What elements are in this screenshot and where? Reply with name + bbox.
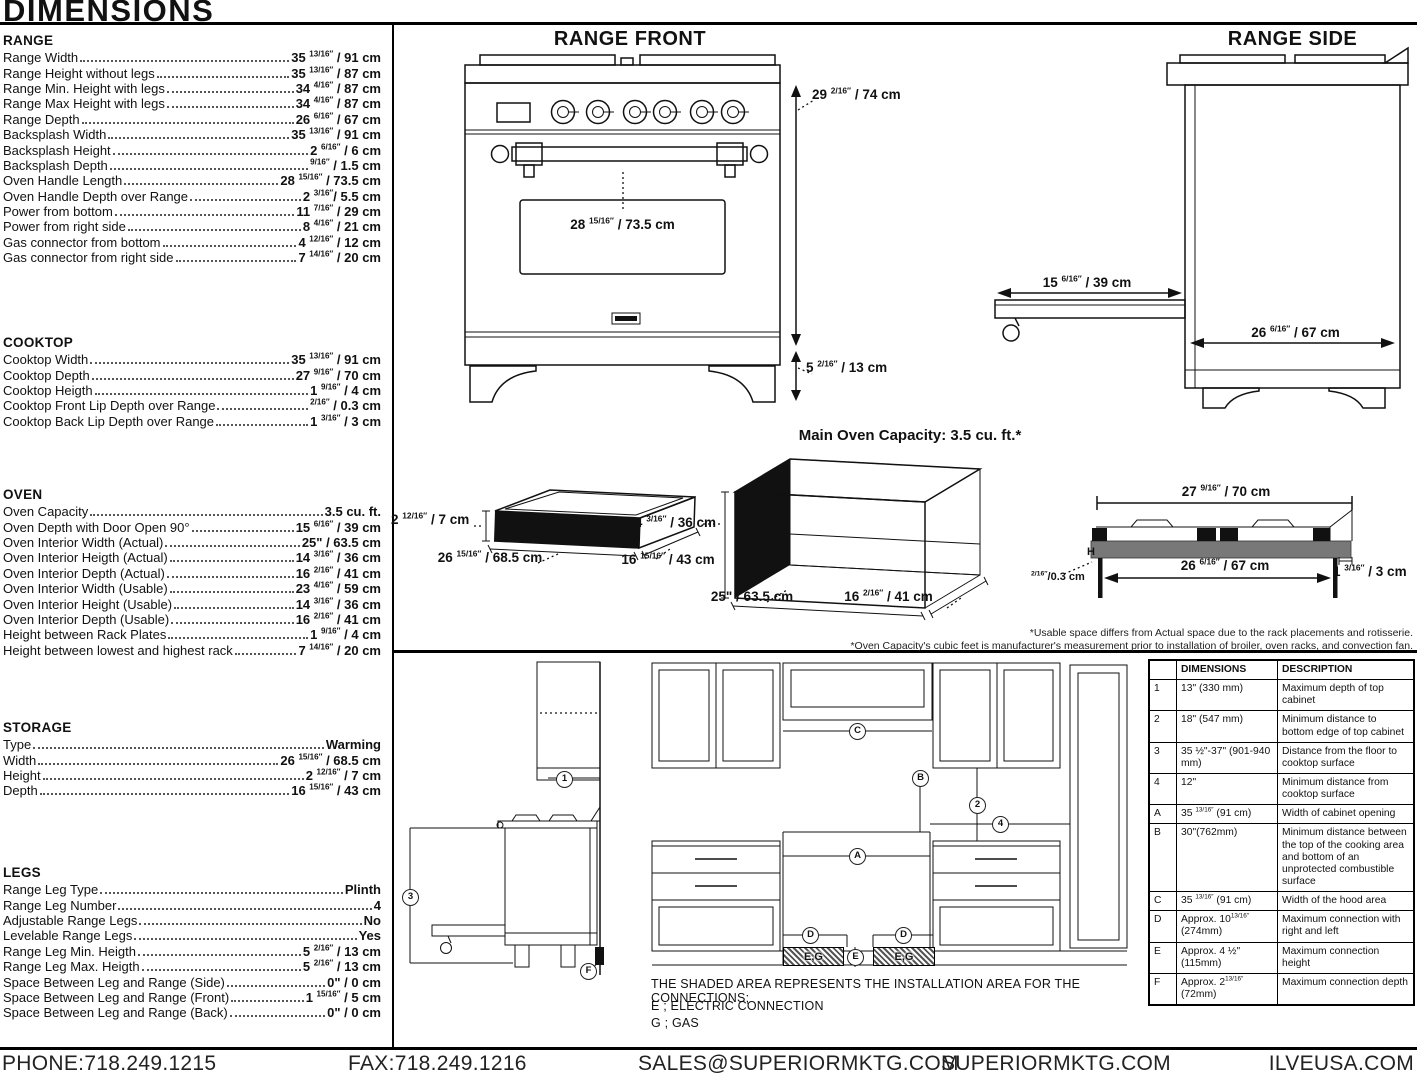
spec-label: Type bbox=[3, 737, 31, 752]
footer-website: SUPERIORMKTG.COM bbox=[941, 1052, 1171, 1076]
spec-row: Width26 15/16″ / 68.5 cm bbox=[3, 752, 381, 767]
spec-value: Plinth bbox=[345, 882, 381, 897]
dotted-leader bbox=[190, 199, 301, 201]
spec-value: 25" / 63.5 cm bbox=[302, 535, 381, 550]
spec-value: 1 9/16″ / 4 cm bbox=[310, 383, 381, 398]
spec-row: Space Between Leg and Range (Back)0" / 0… bbox=[3, 1005, 381, 1020]
spec-row: Oven Interior Heigth (Actual)14 3/16″ / … bbox=[3, 550, 381, 565]
dotted-leader bbox=[43, 778, 304, 780]
header-dimensions: DIMENSIONS bbox=[1177, 660, 1278, 680]
table-key: A bbox=[1149, 805, 1177, 824]
footer-website-ilve: ILVEUSA.COM bbox=[1269, 1052, 1414, 1076]
dotted-leader bbox=[170, 560, 294, 562]
spec-value: Yes bbox=[359, 928, 381, 943]
callout-4: 4 bbox=[992, 816, 1009, 833]
spec-label: Cooktop Width bbox=[3, 352, 88, 367]
dim-cooktop-depth-top: 27 9/16″ / 70 cm bbox=[1151, 484, 1301, 499]
spec-section-oven: OVENOven Capacity3.5 cu. ft.Oven Depth w… bbox=[3, 487, 381, 658]
range-side-drawing bbox=[985, 42, 1417, 410]
spec-value: 14 3/16″ / 36 cm bbox=[296, 550, 381, 565]
dotted-leader bbox=[167, 106, 294, 108]
spec-label: Range Leg Min. Heigth bbox=[3, 944, 136, 959]
dim-door-open: 15 6/16″ / 39 cm bbox=[1012, 275, 1162, 290]
callout-1: 1 bbox=[556, 771, 573, 788]
spec-label: Range Depth bbox=[3, 112, 80, 127]
spec-label: Depth bbox=[3, 783, 38, 798]
spec-row: Cooktop Front Lip Depth over Range2/16″ … bbox=[3, 398, 381, 413]
spec-label: Range Min. Height with legs bbox=[3, 81, 165, 96]
header-key bbox=[1149, 660, 1177, 680]
spec-label: Levelable Range Legs bbox=[3, 928, 132, 943]
table-key: 4 bbox=[1149, 773, 1177, 804]
dim-leg-height: 5 2/16″ / 13 cm bbox=[806, 360, 887, 375]
spec-value: 8 4/16″ / 21 cm bbox=[303, 219, 381, 234]
spec-value: 4 bbox=[374, 898, 381, 913]
table-key: C bbox=[1149, 892, 1177, 911]
connection-area-right: E,G bbox=[873, 947, 935, 966]
dotted-leader bbox=[108, 137, 289, 139]
spec-value: 11 7/16″ / 29 cm bbox=[296, 204, 381, 219]
header-rule bbox=[0, 22, 1417, 25]
spec-row: Range Leg TypePlinth bbox=[3, 882, 381, 897]
connection-area-left: E,G bbox=[783, 947, 844, 966]
spec-value: 2 6/16″ / 6 cm bbox=[310, 143, 381, 158]
spec-label: Backsplash Depth bbox=[3, 158, 108, 173]
spec-row: Range Leg Max. Heigth5 2/16″ / 13 cm bbox=[3, 959, 381, 974]
table-key: F bbox=[1149, 973, 1177, 1005]
spec-label: Oven Interior Width (Usable) bbox=[3, 581, 168, 596]
spec-row: Oven Handle Length28 15/16″ / 73.5 cm bbox=[3, 173, 381, 188]
spec-value: 35 13/16″ / 87 cm bbox=[291, 66, 381, 81]
footnote-oven-capacity: *Oven Capacity's cubic feet is manufactu… bbox=[813, 640, 1413, 652]
spec-value: 16 2/16″ / 41 cm bbox=[296, 566, 381, 581]
spec-row: Power from right side8 4/16″ / 21 cm bbox=[3, 219, 381, 234]
spec-value: 0" / 0 cm bbox=[327, 1005, 381, 1020]
table-key: D bbox=[1149, 911, 1177, 942]
table-dimension: 13" (330 mm) bbox=[1177, 680, 1278, 711]
spec-label: Cooktop Depth bbox=[3, 368, 90, 383]
table-row: EApprox. 4 ½" (115mm)Maximum connection … bbox=[1149, 942, 1414, 973]
dotted-leader bbox=[174, 607, 294, 609]
spec-value: 23 4/16″ / 59 cm bbox=[296, 581, 381, 596]
spec-label: Space Between Leg and Range (Side) bbox=[3, 975, 225, 990]
spec-label: Range Height without legs bbox=[3, 66, 155, 81]
dotted-leader bbox=[100, 892, 343, 894]
footer-fax: FAX:718.249.1216 bbox=[348, 1052, 527, 1076]
spec-row: Height2 12/16″ / 7 cm bbox=[3, 768, 381, 783]
spec-row: Cooktop Width35 13/16″ / 91 cm bbox=[3, 352, 381, 367]
spec-row: Range Min. Height with legs34 4/16″ / 87… bbox=[3, 81, 381, 96]
spec-label: Oven Capacity bbox=[3, 504, 88, 519]
spec-value: 35 13/16″ / 91 cm bbox=[291, 352, 381, 367]
table-key: 3 bbox=[1149, 742, 1177, 773]
table-row: 113" (330 mm)Maximum depth of top cabine… bbox=[1149, 680, 1414, 711]
spec-row: Backsplash Width35 13/16″ / 91 cm bbox=[3, 127, 381, 142]
callout-E: E bbox=[847, 949, 864, 966]
table-key: 2 bbox=[1149, 711, 1177, 742]
spec-label: Oven Interior Width (Actual) bbox=[3, 535, 163, 550]
dotted-leader bbox=[168, 637, 308, 639]
dotted-leader bbox=[171, 622, 294, 624]
spec-label: Backsplash Height bbox=[3, 143, 111, 158]
spec-label: Oven Handle Length bbox=[3, 173, 122, 188]
spec-row: Oven Capacity3.5 cu. ft. bbox=[3, 504, 381, 519]
spec-row: Gas connector from bottom4 12/16″ / 12 c… bbox=[3, 234, 381, 249]
dim-front-lip: 2/16″/0.3 cm bbox=[1031, 571, 1085, 583]
spec-label: Cooktop Back Lip Depth over Range bbox=[3, 414, 214, 429]
dotted-leader bbox=[192, 530, 294, 532]
spec-label: Power from bottom bbox=[3, 204, 113, 219]
spec-value: 3.5 cu. ft. bbox=[325, 504, 381, 519]
table-dimension: Approx. 1013/16″ (274mm) bbox=[1177, 911, 1278, 942]
table-description: Width of the hood area bbox=[1278, 892, 1415, 911]
table-description: Maximum depth of top cabinet bbox=[1278, 680, 1415, 711]
main-oven-capacity-title: Main Oven Capacity: 3.5 cu. ft.* bbox=[780, 427, 1040, 444]
spec-label: Cooktop Heigth bbox=[3, 383, 93, 398]
dim-cooktop-inner: 26 6/16″ / 67 cm bbox=[1155, 558, 1295, 573]
table-description: Maximum connection with right and left bbox=[1278, 911, 1415, 942]
table-row: B30"(762mm)Minimum distance between the … bbox=[1149, 824, 1414, 892]
dotted-leader bbox=[90, 362, 289, 364]
spec-section-range: RANGERange Width35 13/16″ / 91 cmRange H… bbox=[3, 33, 381, 265]
table-row: 335 ½"-37" (901-940 mm)Distance from the… bbox=[1149, 742, 1414, 773]
table-header-row: DIMENSIONS DESCRIPTION bbox=[1149, 660, 1414, 680]
dimensions-sheet: DIMENSIONS RANGERange Width35 13/16″ / 9… bbox=[0, 0, 1417, 1080]
spec-row: Range Max Height with legs34 4/16″ / 87 … bbox=[3, 96, 381, 111]
spec-value: Warming bbox=[326, 737, 381, 752]
dotted-leader bbox=[217, 408, 308, 410]
spec-value: 0" / 0 cm bbox=[327, 975, 381, 990]
callout-F: F bbox=[580, 963, 597, 980]
spec-row: Backsplash Depth9/16″ / 1.5 cm bbox=[3, 158, 381, 173]
spec-value: 2 3/16″/ 5.5 cm bbox=[303, 189, 381, 204]
spec-section-legs: LEGSRange Leg TypePlinthRange Leg Number… bbox=[3, 865, 381, 1020]
storage-drawer-drawing bbox=[388, 475, 723, 593]
dotted-leader bbox=[230, 1015, 325, 1017]
spec-label: Range Max Height with legs bbox=[3, 96, 165, 111]
spec-row: Cooktop Heigth1 9/16″ / 4 cm bbox=[3, 383, 381, 398]
table-description: Maximum connection depth bbox=[1278, 973, 1415, 1005]
spec-row: Range Depth26 6/16″ / 67 cm bbox=[3, 111, 381, 126]
callout-B: B bbox=[912, 770, 929, 787]
legend-gas: G ; GAS bbox=[651, 1016, 699, 1030]
dotted-leader bbox=[167, 576, 294, 578]
spec-value: 4 12/16″ / 12 cm bbox=[298, 235, 381, 250]
table-description: Minimum distance from cooktop surface bbox=[1278, 773, 1415, 804]
spec-row: Power from bottom11 7/16″ / 29 cm bbox=[3, 204, 381, 219]
base-cabinet-right bbox=[933, 841, 1060, 951]
table-dimension: 12" bbox=[1177, 773, 1278, 804]
section-title: STORAGE bbox=[3, 720, 381, 735]
spec-row: Oven Interior Height (Usable)14 3/16″ / … bbox=[3, 596, 381, 611]
spec-value: 1 9/16″ / 4 cm bbox=[310, 627, 381, 642]
spec-value: 9/16″ / 1.5 cm bbox=[310, 158, 381, 173]
dim-back-lip: 1 3/16″ / 3 cm bbox=[1333, 564, 1407, 579]
dotted-leader bbox=[163, 245, 297, 247]
spec-row: Oven Handle Depth over Range2 3/16″/ 5.5… bbox=[3, 188, 381, 203]
spec-row: Range Leg Number4 bbox=[3, 897, 381, 912]
spec-label: Oven Handle Depth over Range bbox=[3, 189, 188, 204]
spec-row: Height between lowest and highest rack7 … bbox=[3, 642, 381, 657]
spec-row: TypeWarming bbox=[3, 737, 381, 752]
spec-row: Range Leg Min. Heigth5 2/16″ / 13 cm bbox=[3, 943, 381, 958]
spec-label: Range Width bbox=[3, 50, 78, 65]
spec-row: Oven Interior Width (Usable)23 4/16″ / 5… bbox=[3, 581, 381, 596]
spec-value: 14 3/16″ / 36 cm bbox=[296, 597, 381, 612]
table-dimension: 35 ½"-37" (901-940 mm) bbox=[1177, 742, 1278, 773]
spec-value: 2 12/16″ / 7 cm bbox=[306, 768, 381, 783]
spec-value: 5 2/16″ / 13 cm bbox=[303, 944, 381, 959]
spec-row: Space Between Leg and Range (Front)1 15/… bbox=[3, 990, 381, 1005]
table-description: Width of cabinet opening bbox=[1278, 805, 1415, 824]
spec-label: Range Leg Max. Heigth bbox=[3, 959, 140, 974]
dim-oven-depth: 16 2/16″ / 41 cm bbox=[826, 589, 951, 604]
dim-oven-width: 25" / 63.5 cm bbox=[692, 589, 812, 604]
spec-label: Height between lowest and highest rack bbox=[3, 643, 233, 658]
section-title: LEGS bbox=[3, 865, 381, 880]
spec-label: Range Leg Number bbox=[3, 898, 116, 913]
dotted-leader bbox=[80, 60, 289, 62]
spec-row: Space Between Leg and Range (Side)0" / 0… bbox=[3, 974, 381, 989]
dotted-leader bbox=[110, 168, 308, 170]
spec-value: 1 15/16″ / 5 cm bbox=[306, 990, 381, 1005]
footer-rule bbox=[0, 1047, 1417, 1050]
control-knobs bbox=[552, 101, 750, 124]
table-description: Minimum distance to bottom edge of top c… bbox=[1278, 711, 1415, 742]
dotted-leader bbox=[113, 153, 308, 155]
h-mark: H bbox=[1087, 546, 1095, 558]
range-side-profile bbox=[432, 807, 604, 967]
wall-cabinets-left bbox=[652, 663, 780, 768]
section-title: COOKTOP bbox=[3, 335, 381, 350]
spec-value: 15 6/16″ / 39 cm bbox=[296, 520, 381, 535]
dotted-leader bbox=[115, 214, 295, 216]
callout-C: C bbox=[849, 723, 866, 740]
table-row: 218" (547 mm)Minimum distance to bottom … bbox=[1149, 711, 1414, 742]
dotted-leader bbox=[170, 591, 294, 593]
callout-D-right: D bbox=[895, 927, 912, 944]
spec-row: Adjustable Range LegsNo bbox=[3, 913, 381, 928]
spec-value: No bbox=[364, 913, 381, 928]
connection-area-label: E,G bbox=[804, 951, 823, 963]
table-key: 1 bbox=[1149, 680, 1177, 711]
spec-label: Oven Depth with Door Open 90° bbox=[3, 520, 190, 535]
callout-A: A bbox=[849, 848, 866, 865]
spec-row: Depth16 15/16″ / 43 cm bbox=[3, 783, 381, 798]
dotted-leader bbox=[165, 545, 299, 547]
dimensions-table: DIMENSIONS DESCRIPTION 113" (330 mm)Maxi… bbox=[1148, 659, 1415, 1006]
spec-value: 7 14/16″ / 20 cm bbox=[298, 250, 381, 265]
connection-area-label: E,G bbox=[895, 951, 914, 963]
spec-row: Oven Depth with Door Open 90°15 6/16″ / … bbox=[3, 519, 381, 534]
dotted-leader bbox=[82, 122, 294, 124]
table-dimension: Approx. 213/16″ (72mm) bbox=[1177, 973, 1278, 1005]
table-description: Distance from the floor to cooktop surfa… bbox=[1278, 742, 1415, 773]
dotted-leader bbox=[227, 985, 325, 987]
spec-label: Height between Rack Plates bbox=[3, 627, 166, 642]
dotted-leader bbox=[235, 653, 297, 655]
table-row: A35 13/16″ (91 cm)Width of cabinet openi… bbox=[1149, 805, 1414, 824]
spec-row: Backsplash Height2 6/16″ / 6 cm bbox=[3, 142, 381, 157]
spec-row: Cooktop Depth27 9/16″ / 70 cm bbox=[3, 367, 381, 382]
dotted-leader bbox=[90, 514, 322, 516]
dotted-leader bbox=[134, 938, 356, 940]
spec-label: Width bbox=[3, 753, 36, 768]
spec-label: Height bbox=[3, 768, 41, 783]
dotted-leader bbox=[118, 908, 371, 910]
oven-handle bbox=[492, 143, 768, 177]
dim-storage-height: 2 12/16″ / 7 cm bbox=[391, 512, 469, 527]
spec-label: Range Leg Type bbox=[3, 882, 98, 897]
spec-row: Range Width35 13/16″ / 91 cm bbox=[3, 50, 381, 65]
spec-value: 16 2/16″ / 41 cm bbox=[296, 612, 381, 627]
dotted-leader bbox=[138, 954, 301, 956]
spec-value: 34 4/16″ / 87 cm bbox=[296, 96, 381, 111]
spec-label: Backsplash Width bbox=[3, 127, 106, 142]
footnote-usable-space: *Usable space differs from Actual space … bbox=[843, 627, 1413, 639]
dim-handle-length: 28 15/16″ / 73.5 cm bbox=[520, 217, 725, 232]
table-key: B bbox=[1149, 824, 1177, 892]
callout-3: 3 bbox=[402, 889, 419, 906]
table-dimension: Approx. 4 ½" (115mm) bbox=[1177, 942, 1278, 973]
spec-row: Range Height without legs35 13/16″ / 87 … bbox=[3, 65, 381, 80]
section-title: RANGE bbox=[3, 33, 381, 48]
table-description: Maximum connection height bbox=[1278, 942, 1415, 973]
install-front-view bbox=[645, 655, 1150, 975]
dotted-leader bbox=[142, 969, 301, 971]
dim-range-height: 29 2/16″ / 74 cm bbox=[812, 87, 901, 102]
spec-row: Height between Rack Plates1 9/16″ / 4 cm bbox=[3, 627, 381, 642]
table-dimension: 18" (547 mm) bbox=[1177, 711, 1278, 742]
spec-label: Oven Interior Height (Usable) bbox=[3, 597, 172, 612]
install-side-view bbox=[398, 655, 648, 985]
spec-label: Power from right side bbox=[3, 219, 126, 234]
callout-2: 2 bbox=[969, 797, 986, 814]
dotted-leader bbox=[176, 260, 297, 262]
table-dimension: 35 13/16″ (91 cm) bbox=[1177, 805, 1278, 824]
dotted-leader bbox=[124, 183, 278, 185]
table-row: DApprox. 1013/16″ (274mm)Maximum connect… bbox=[1149, 911, 1414, 942]
spec-row: Cooktop Back Lip Depth over Range1 3/16″… bbox=[3, 413, 381, 428]
dotted-leader bbox=[139, 923, 361, 925]
table-row: C35 13/16″ (91 cm)Width of the hood area bbox=[1149, 892, 1414, 911]
spec-label: Oven Interior Heigth (Actual) bbox=[3, 550, 168, 565]
spec-row: Oven Interior Depth (Usable)16 2/16″ / 4… bbox=[3, 612, 381, 627]
footer-phone: PHONE:718.249.1215 bbox=[2, 1052, 216, 1076]
spec-value: 1 3/16″ / 3 cm bbox=[310, 414, 381, 429]
spec-label: Space Between Leg and Range (Back) bbox=[3, 1005, 228, 1020]
spec-label: Gas connector from bottom bbox=[3, 235, 161, 250]
section-title: OVEN bbox=[3, 487, 381, 502]
spec-row: Levelable Range LegsYes bbox=[3, 928, 381, 943]
dotted-leader bbox=[92, 378, 294, 380]
spec-row: Oven Interior Width (Actual)25" / 63.5 c… bbox=[3, 535, 381, 550]
spec-section-storage: STORAGETypeWarmingWidth26 15/16″ / 68.5 … bbox=[3, 720, 381, 798]
spec-value: 28 15/16″ / 73.5 cm bbox=[280, 173, 381, 188]
header-description: DESCRIPTION bbox=[1278, 660, 1415, 680]
spec-label: Gas connector from right side bbox=[3, 250, 174, 265]
base-cabinet-left bbox=[652, 841, 780, 951]
tall-cabinet bbox=[1070, 665, 1127, 948]
spec-label: Oven Interior Depth (Actual) bbox=[3, 566, 165, 581]
dim-storage-width: 26 15/16″ / 68.5 cm bbox=[424, 550, 556, 565]
table-description: Minimum distance between the top of the … bbox=[1278, 824, 1415, 892]
dotted-leader bbox=[157, 76, 289, 78]
spec-label: Cooktop Front Lip Depth over Range bbox=[3, 398, 215, 413]
spec-value: 35 13/16″ / 91 cm bbox=[291, 127, 381, 142]
table-dimension: 30"(762mm) bbox=[1177, 824, 1278, 892]
dim-oven-height: 14 3/16″ / 36 cm bbox=[598, 515, 716, 530]
spec-value: 5 2/16″ / 13 cm bbox=[303, 959, 381, 974]
spec-value: 26 6/16″ / 67 cm bbox=[296, 112, 381, 127]
dotted-leader bbox=[95, 393, 309, 395]
spec-label: Adjustable Range Legs bbox=[3, 913, 137, 928]
spec-section-cooktop: COOKTOPCooktop Width35 13/16″ / 91 cmCoo… bbox=[3, 335, 381, 429]
spec-value: 35 13/16″ / 91 cm bbox=[291, 50, 381, 65]
table-row: FApprox. 213/16″ (72mm)Maximum connectio… bbox=[1149, 973, 1414, 1005]
spec-value: 26 15/16″ / 68.5 cm bbox=[280, 753, 381, 768]
table-row: 412"Minimum distance from cooktop surfac… bbox=[1149, 773, 1414, 804]
callout-D-left: D bbox=[802, 927, 819, 944]
open-door-shelf bbox=[995, 300, 1185, 341]
dotted-leader bbox=[216, 424, 308, 426]
dotted-leader bbox=[40, 793, 290, 795]
spec-value: 16 15/16″ / 43 cm bbox=[291, 783, 381, 798]
spec-label: Oven Interior Depth (Usable) bbox=[3, 612, 169, 627]
dotted-leader bbox=[167, 91, 294, 93]
dotted-leader bbox=[38, 763, 278, 765]
footer-email: SALES@SUPERIORMKTG.COM bbox=[638, 1052, 959, 1076]
spec-row: Gas connector from right side7 14/16″ / … bbox=[3, 250, 381, 265]
wall-cabinets-right bbox=[933, 663, 1060, 768]
spec-label: Space Between Leg and Range (Front) bbox=[3, 990, 229, 1005]
spec-value: 7 14/16″ / 20 cm bbox=[298, 643, 381, 658]
cooktop-profile-drawing bbox=[1030, 482, 1417, 602]
dim-range-depth: 26 6/16″ / 67 cm bbox=[1213, 325, 1378, 340]
dotted-leader bbox=[128, 229, 301, 231]
spec-value: 27 9/16″ / 70 cm bbox=[296, 368, 381, 383]
spec-row: Oven Interior Depth (Actual)16 2/16″ / 4… bbox=[3, 565, 381, 580]
dotted-leader bbox=[231, 1000, 303, 1002]
dotted-leader bbox=[33, 747, 324, 749]
spec-value: 34 4/16″ / 87 cm bbox=[296, 81, 381, 96]
hood-cabinet bbox=[783, 663, 932, 731]
spec-value: 2/16″ / 0.3 cm bbox=[310, 398, 381, 413]
legend-electric: E ; ELECTRIC CONNECTION bbox=[651, 999, 824, 1013]
table-key: E bbox=[1149, 942, 1177, 973]
range-front-title: RANGE FRONT bbox=[440, 28, 820, 51]
table-dimension: 35 13/16″ (91 cm) bbox=[1177, 892, 1278, 911]
